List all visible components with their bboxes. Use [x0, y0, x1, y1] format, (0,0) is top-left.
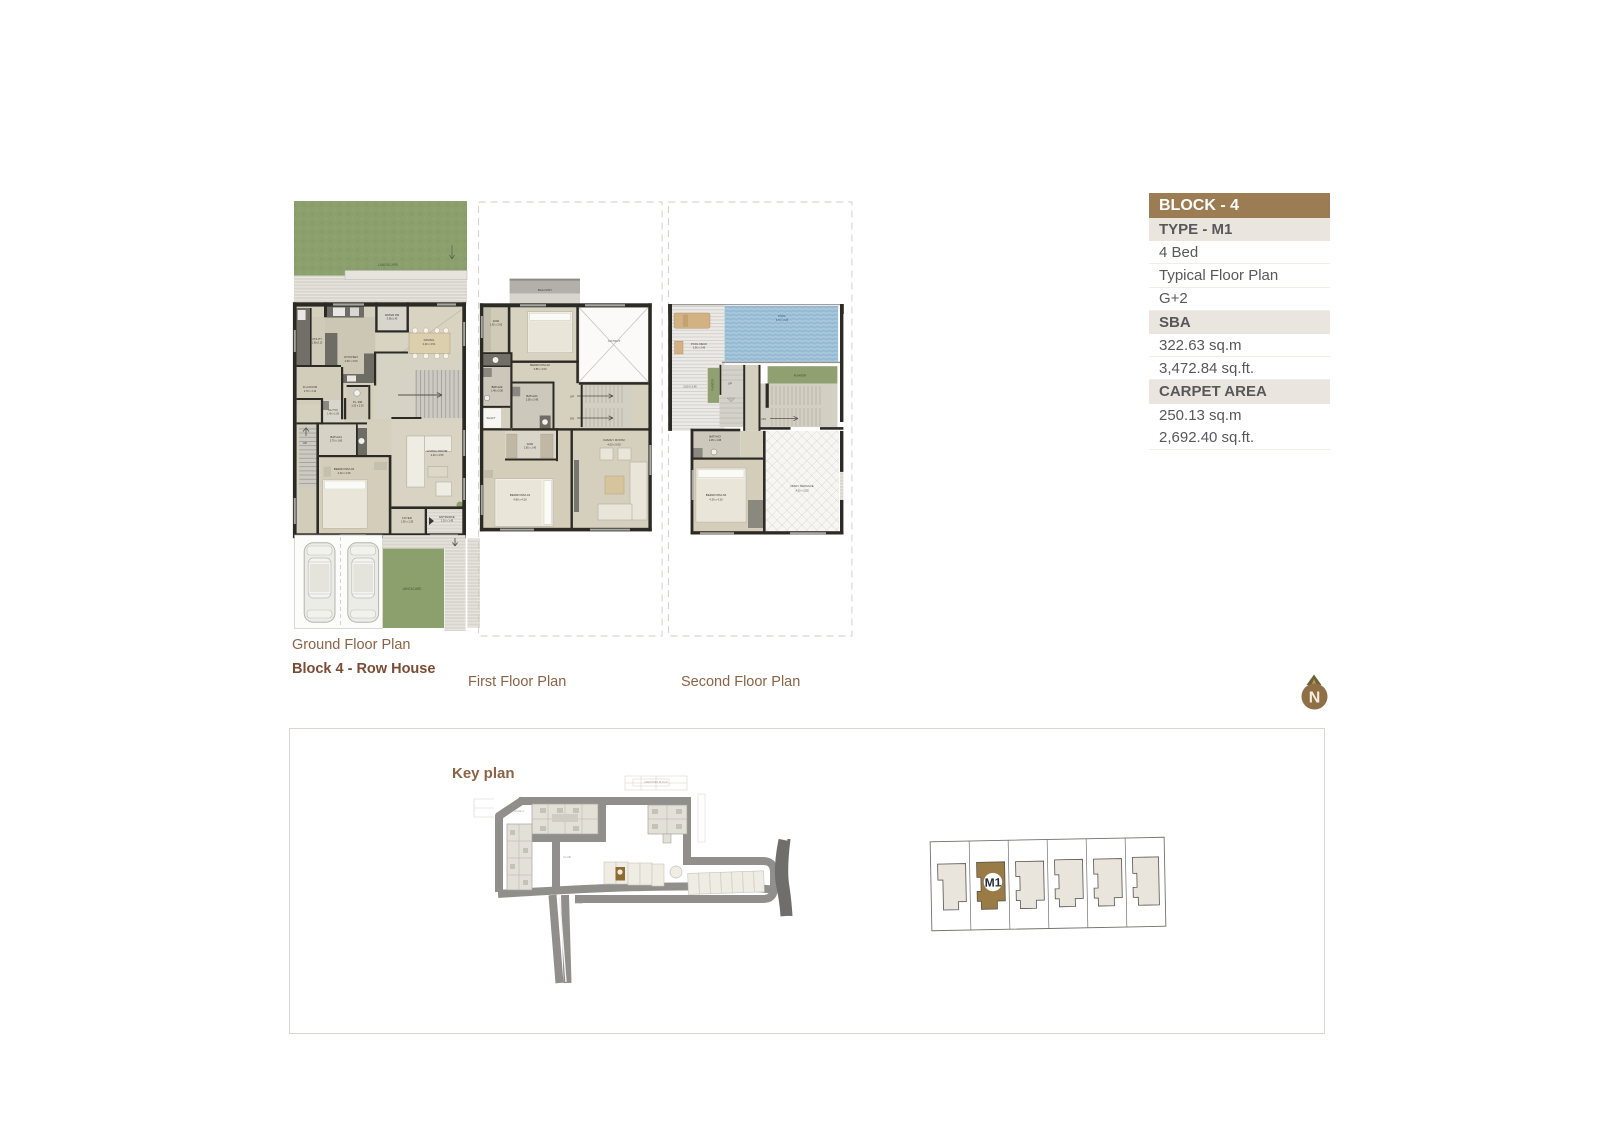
svg-text:BATH-02: BATH-02 — [492, 385, 503, 389]
svg-text:DN: DN — [762, 417, 766, 421]
svg-text:WATER RM: WATER RM — [385, 313, 400, 317]
svg-text:1.92 x 2.66: 1.92 x 2.66 — [490, 324, 503, 327]
svg-text:2.05 x 2.45: 2.05 x 2.45 — [526, 399, 539, 402]
svg-text:6.70 x 2.25: 6.70 x 2.25 — [776, 319, 789, 322]
svg-text:0.95x1.40: 0.95x1.40 — [387, 317, 398, 320]
svg-text:BATH-01: BATH-01 — [526, 394, 538, 398]
svg-text:4.80 x 4.20: 4.80 x 4.20 — [513, 497, 527, 501]
svg-text:1.20 x 2.20: 1.20 x 2.20 — [351, 405, 364, 408]
svg-text:4.30 x 4.20: 4.30 x 4.20 — [709, 497, 723, 501]
svg-text:2.00 X 2.45: 2.00 X 2.45 — [683, 385, 697, 389]
svg-text:4.00 x 5.00: 4.00 x 5.00 — [607, 442, 621, 446]
svg-text:UP: UP — [303, 441, 307, 445]
svg-text:DN: DN — [570, 417, 574, 421]
svg-text:UP: UP — [570, 395, 574, 399]
svg-text:1.90 x 1.35: 1.90 x 1.35 — [401, 521, 414, 524]
svg-text:UP: UP — [728, 382, 732, 386]
svg-text:PLANTER: PLANTER — [794, 374, 806, 378]
svg-text:BEDROOM-02: BEDROOM-02 — [530, 363, 550, 367]
svg-text:WAR: WAR — [527, 442, 533, 446]
svg-text:2.10 x 1.45: 2.10 x 1.45 — [441, 520, 454, 523]
svg-text:POOL DECK: POOL DECK — [691, 342, 707, 346]
svg-text:FOYER: FOYER — [402, 516, 412, 520]
svg-text:UTILITY: UTILITY — [312, 337, 322, 341]
svg-text:2.90 x 3.45: 2.90 x 3.45 — [693, 347, 706, 350]
svg-text:1.40 x 1.05: 1.40 x 1.05 — [327, 412, 339, 415]
svg-text:N: N — [1309, 690, 1321, 707]
svg-text:2.70 x 3.16: 2.70 x 3.16 — [304, 390, 317, 393]
svg-text:LIVING ROOM: LIVING ROOM — [427, 449, 448, 453]
svg-text:4.20 x 3.51: 4.20 x 3.51 — [423, 342, 436, 346]
svg-text:1.85x2.10: 1.85x2.10 — [312, 341, 323, 344]
svg-text:SHAFT: SHAFT — [486, 416, 495, 420]
svg-text:CUTOUT: CUTOUT — [608, 339, 621, 343]
svg-text:2.05 x 1.95: 2.05 x 1.95 — [709, 439, 722, 442]
svg-text:BALCONY: BALCONY — [538, 288, 552, 292]
svg-text:BATH-03: BATH-03 — [709, 435, 721, 439]
svg-text:BEDROOM-04: BEDROOM-04 — [334, 467, 355, 471]
svg-text:BATH-04: BATH-04 — [330, 435, 342, 439]
svg-text:FAMILY ROOM: FAMILY ROOM — [603, 438, 625, 442]
svg-text:4.20 x 4.56: 4.20 x 4.56 — [431, 453, 444, 457]
svg-text:BEDROOM-01: BEDROOM-01 — [510, 493, 531, 497]
svg-text:4.20 x 4.36: 4.20 x 4.36 — [338, 471, 351, 475]
svg-text:3.85 x 4.50: 3.85 x 4.50 — [534, 367, 547, 371]
svg-text:2.90 x 4.50: 2.90 x 4.50 — [345, 359, 358, 363]
svg-text:GU TOI: GU TOI — [328, 408, 337, 412]
svg-text:VANTACARE: VANTACARE — [402, 587, 421, 591]
svg-text:DINING: DINING — [424, 338, 435, 342]
svg-text:OPEN TERRACE: OPEN TERRACE — [790, 484, 814, 488]
svg-text:ENTRANCE: ENTRANCE — [439, 515, 455, 519]
svg-text:BEDROOM-03: BEDROOM-03 — [706, 493, 727, 497]
svg-text:KITCHEN: KITCHEN — [344, 355, 358, 359]
svg-text:WAR: WAR — [493, 319, 499, 323]
svg-text:LANDSCAPE: LANDSCAPE — [378, 263, 399, 267]
svg-text:D.H ROOM: D.H ROOM — [303, 385, 318, 389]
svg-text:1.40 x 2.00: 1.40 x 2.00 — [491, 389, 503, 392]
svg-text:PLANTER: PLANTER — [711, 379, 714, 391]
svg-text:2.65 x 1.40: 2.65 x 1.40 — [524, 447, 537, 450]
svg-text:POOL: POOL — [778, 314, 786, 318]
svg-text:2.70 x 1.60: 2.70 x 1.60 — [330, 440, 343, 443]
svg-text:PL. RM: PL. RM — [353, 400, 363, 404]
svg-text:4.20 x 5.50: 4.20 x 5.50 — [796, 488, 809, 492]
